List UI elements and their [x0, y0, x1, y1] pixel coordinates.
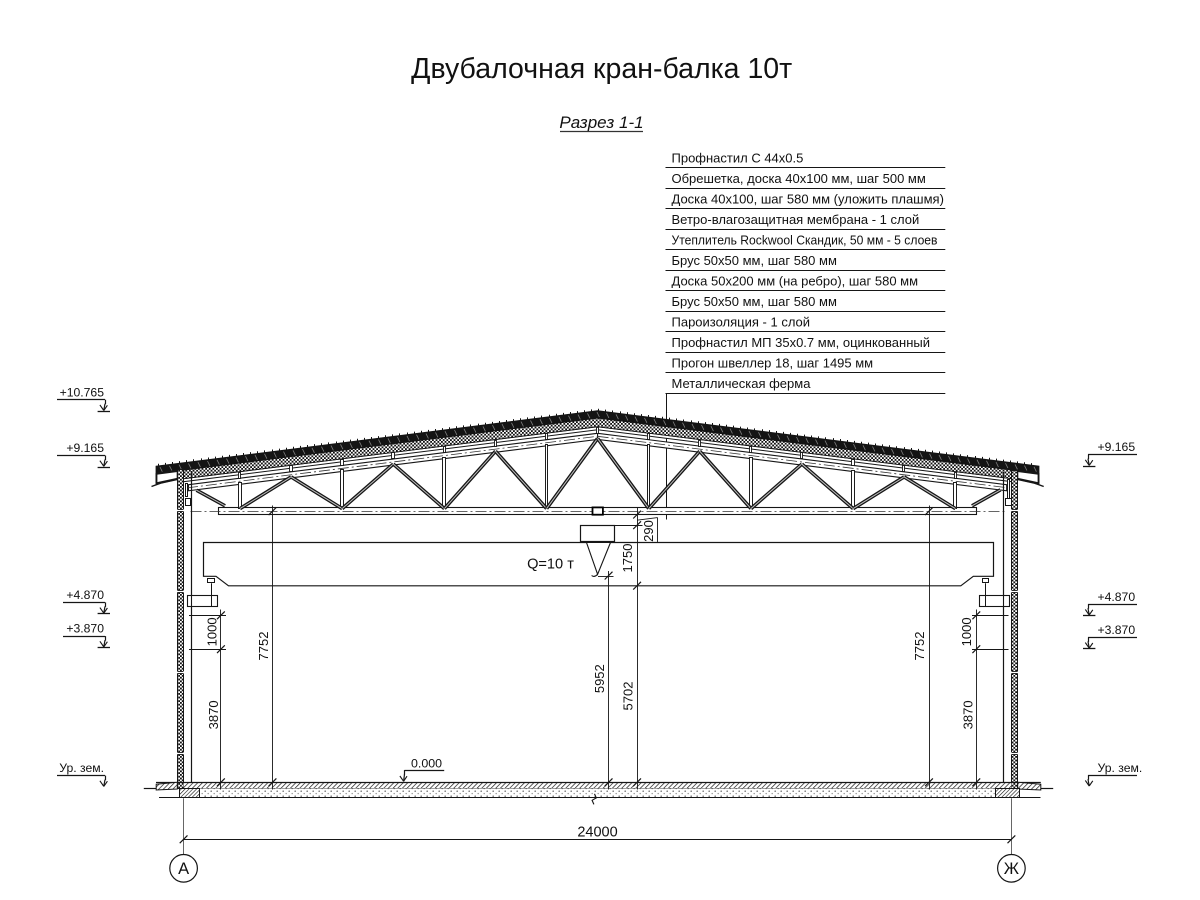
svg-text:1000: 1000	[959, 617, 974, 646]
svg-text:Профнастил МП 35х0.7 мм, оцинк: Профнастил МП 35х0.7 мм, оцинкованный	[672, 335, 930, 350]
svg-text:3870: 3870	[206, 700, 221, 729]
svg-text:1750: 1750	[620, 544, 635, 573]
svg-text:Прогон швеллер 18, шаг 1495 мм: Прогон швеллер 18, шаг 1495 мм	[672, 355, 874, 370]
svg-text:5952: 5952	[592, 664, 607, 693]
svg-text:7752: 7752	[256, 632, 271, 661]
svg-text:Q=10 т: Q=10 т	[527, 557, 574, 573]
svg-text:Брус 50х50 мм, шаг 580 мм: Брус 50х50 мм, шаг 580 мм	[672, 294, 837, 309]
svg-text:Доска 40х100, шаг 580 мм (улож: Доска 40х100, шаг 580 мм (уложить плашмя…	[672, 191, 944, 206]
svg-text:Пароизоляция - 1 слой: Пароизоляция - 1 слой	[672, 314, 811, 329]
svg-text:1000: 1000	[204, 617, 219, 646]
svg-text:5702: 5702	[620, 682, 635, 711]
svg-text:+4.870: +4.870	[1098, 590, 1136, 604]
svg-text:Брус 50х50 мм, шаг 580 мм: Брус 50х50 мм, шаг 580 мм	[672, 253, 837, 268]
svg-text:7752: 7752	[912, 632, 927, 661]
svg-text:Обрешетка, доска 40х100 мм, ша: Обрешетка, доска 40х100 мм, шаг 500 мм	[672, 171, 926, 186]
svg-text:Ветро-влагозащитная мембрана -: Ветро-влагозащитная мембрана - 1 слой	[672, 212, 920, 227]
svg-text:290: 290	[641, 520, 656, 542]
svg-text:Ур. зем.: Ур. зем.	[1098, 761, 1143, 775]
svg-text:Утеплитель Rockwool Скандик, 5: Утеплитель Rockwool Скандик, 50 мм - 5 с…	[672, 232, 938, 247]
svg-text:Доска 50х200 мм (на ребро), ша: Доска 50х200 мм (на ребро), шаг 580 мм	[672, 273, 919, 288]
svg-text:Профнастил С 44х0.5: Профнастил С 44х0.5	[672, 150, 804, 165]
svg-text:+9.165: +9.165	[66, 441, 104, 455]
svg-text:3870: 3870	[961, 700, 976, 729]
svg-text:+3.870: +3.870	[1098, 623, 1136, 637]
svg-text:0.000: 0.000	[411, 756, 442, 770]
svg-text:+9.165: +9.165	[1098, 440, 1136, 454]
svg-text:+10.765: +10.765	[60, 385, 105, 399]
svg-text:А: А	[178, 860, 189, 878]
svg-text:+4.870: +4.870	[66, 588, 104, 602]
svg-text:+3.870: +3.870	[66, 622, 104, 636]
svg-text:Металлическая ферма: Металлическая ферма	[672, 376, 812, 391]
svg-text:24000: 24000	[577, 824, 617, 840]
svg-text:Ж: Ж	[1004, 860, 1020, 878]
svg-text:Ур. зем.: Ур. зем.	[59, 761, 104, 775]
svg-text:Двубалочная кран-балка 10т: Двубалочная кран-балка 10т	[411, 53, 792, 85]
svg-text:Разрез 1-1: Разрез 1-1	[559, 113, 643, 132]
